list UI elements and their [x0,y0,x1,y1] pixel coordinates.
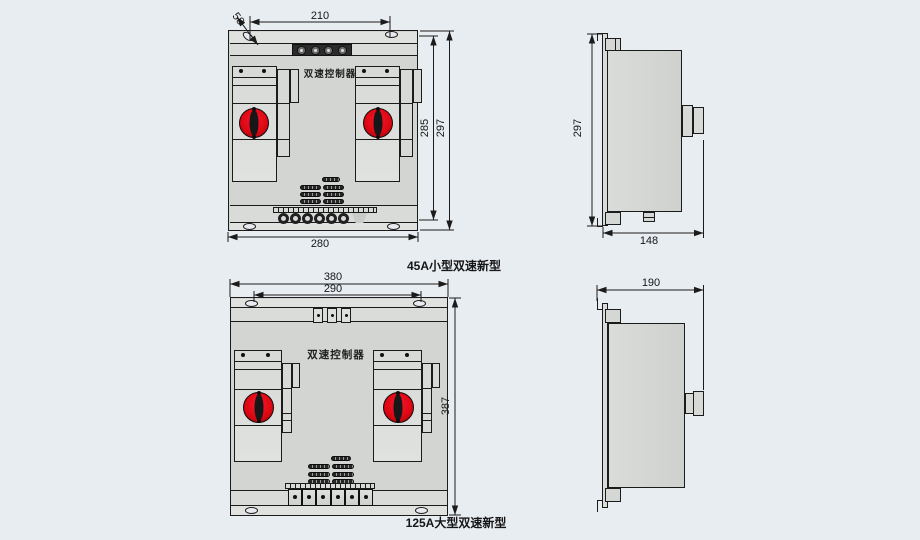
dim-label-387: 387 [440,389,452,423]
dim-label-190: 190 [631,277,671,289]
dim-297-side [587,34,602,226]
caption-125a: 125A大型双速新型 [392,514,520,531]
dimension-drawing-canvas: 双速控制器 [0,0,920,540]
dim-label-210: 210 [303,10,337,22]
dim-148 [603,140,704,238]
caption-45a: 45A小型双速新型 [392,257,516,274]
dim-label-280: 280 [301,238,339,250]
dim-label-285: 285 [419,113,431,143]
dim-label-297-side: 297 [572,113,584,143]
dim-label-380: 380 [313,271,353,283]
dim-label-148: 148 [629,235,669,247]
dim-label-297-front: 297 [435,113,447,143]
dim-190 [597,285,704,390]
dim-label-290: 290 [313,283,353,295]
